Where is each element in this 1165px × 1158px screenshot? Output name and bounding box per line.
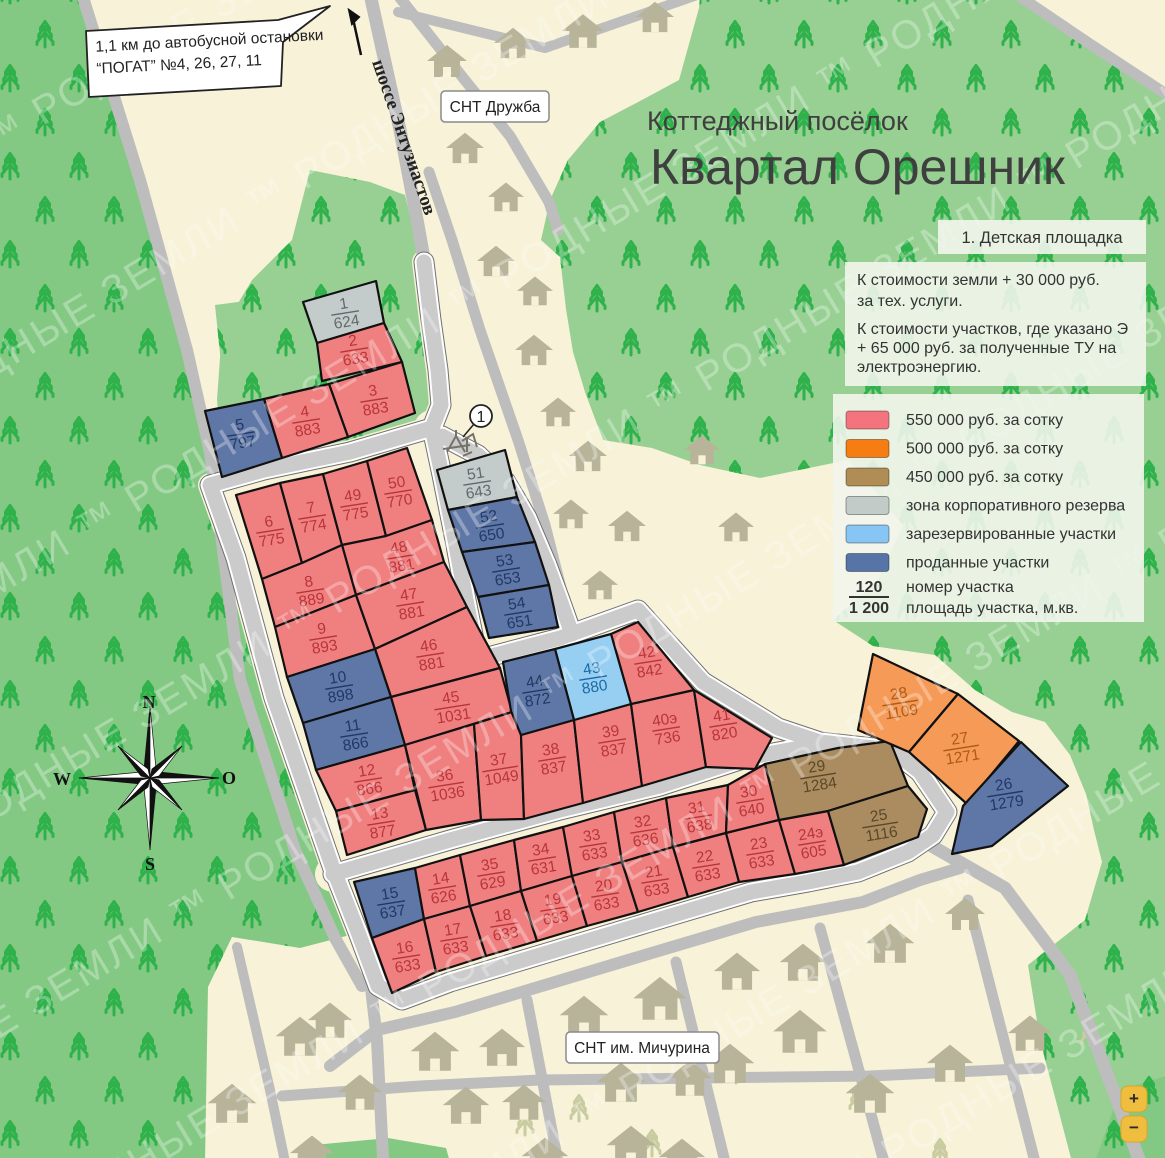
svg-text:площадь участка, м.кв.: площадь участка, м.кв. (906, 600, 1078, 617)
svg-text:14: 14 (431, 869, 451, 889)
svg-text:45: 45 (441, 688, 461, 707)
svg-text:СНТ им. Мичурина: СНТ им. Мичурина (574, 1040, 710, 1057)
svg-text:49: 49 (343, 486, 363, 505)
svg-text:25: 25 (869, 806, 889, 825)
svg-text:46: 46 (419, 636, 439, 655)
svg-text:S: S (145, 854, 155, 874)
svg-text:450 000 руб. за сотку: 450 000 руб. за сотку (906, 469, 1063, 486)
svg-text:34: 34 (531, 840, 551, 860)
svg-text:41: 41 (712, 706, 732, 725)
svg-text:1 200: 1 200 (849, 600, 889, 617)
svg-text:10: 10 (328, 668, 348, 688)
svg-text:+ 65 000 руб. за полученные ТУ: + 65 000 руб. за полученные ТУ на (857, 340, 1116, 357)
svg-text:26: 26 (994, 775, 1014, 794)
svg-text:17: 17 (443, 920, 463, 939)
svg-text:1. Детская площадка: 1. Детская площадка (961, 229, 1123, 247)
svg-text:51: 51 (466, 464, 486, 483)
svg-text:37: 37 (489, 750, 509, 769)
svg-text:54: 54 (507, 594, 527, 614)
svg-text:+: + (1129, 1089, 1139, 1108)
svg-text:33: 33 (582, 826, 602, 845)
svg-text:15: 15 (380, 884, 400, 903)
svg-text:38: 38 (541, 740, 561, 759)
svg-text:O: O (222, 768, 236, 788)
svg-text:35: 35 (480, 855, 500, 874)
svg-text:Квартал Орешник: Квартал Орешник (650, 139, 1066, 195)
svg-text:500 000 руб. за сотку: 500 000 руб. за сотку (906, 441, 1063, 458)
svg-text:47: 47 (399, 585, 419, 604)
svg-text:К стоимости участков, где указ: К стоимости участков, где указано Э (857, 321, 1128, 338)
svg-text:120: 120 (856, 579, 883, 596)
svg-text:50: 50 (387, 473, 407, 493)
svg-text:электроэнергию.: электроэнергию. (857, 359, 981, 376)
svg-text:−: − (1129, 1118, 1139, 1137)
svg-text:СНТ Дружба: СНТ Дружба (450, 99, 541, 116)
svg-text:К стоимости земли + 30 000 руб: К стоимости земли + 30 000 руб. (857, 272, 1100, 289)
svg-text:23: 23 (749, 834, 769, 853)
svg-text:550 000 руб. за сотку: 550 000 руб. за сотку (906, 412, 1063, 429)
svg-text:1: 1 (477, 409, 486, 426)
svg-text:53: 53 (495, 551, 515, 570)
svg-text:проданные участки: проданные участки (906, 555, 1049, 572)
svg-text:за тех. услуги.: за тех. услуги. (857, 293, 963, 310)
svg-text:39: 39 (601, 722, 621, 741)
svg-text:16: 16 (395, 938, 415, 957)
svg-text:зона корпоративного резерва: зона корпоративного резерва (906, 498, 1125, 515)
svg-text:номер участка: номер участка (906, 579, 1014, 596)
svg-text:зарезервированные участки: зарезервированные участки (906, 526, 1116, 543)
svg-text:11: 11 (343, 716, 362, 735)
svg-text:27: 27 (950, 729, 970, 748)
svg-text:Коттеджный посёлок: Коттеджный посёлок (647, 106, 908, 136)
